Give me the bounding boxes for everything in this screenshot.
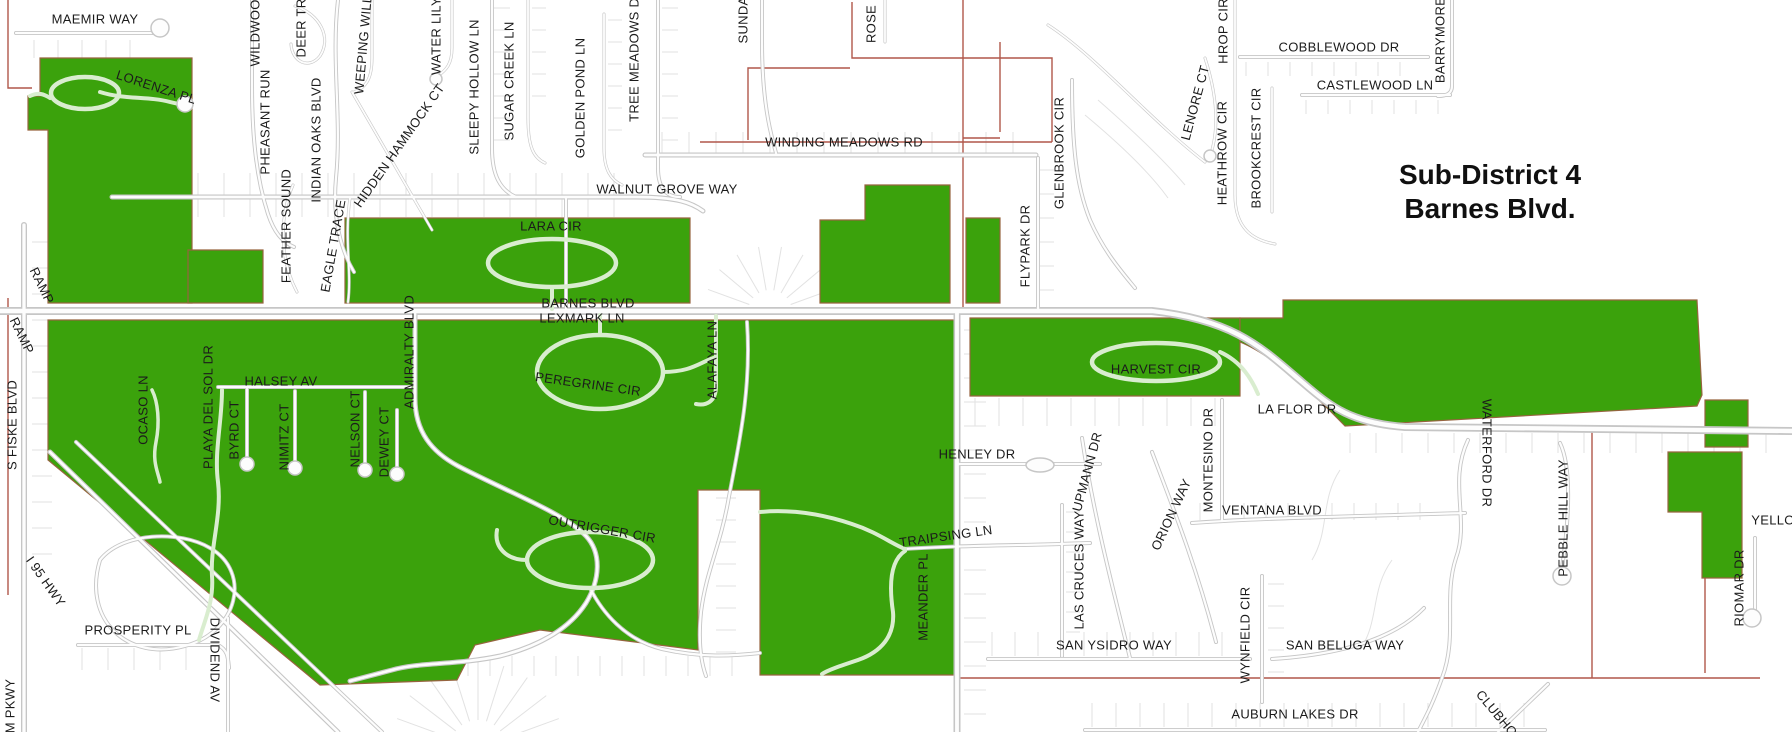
street-label-pheasant-run: PHEASANT RUN xyxy=(257,69,272,174)
street-label-hidden-hammock-ct: HIDDEN HAMMOCK CT xyxy=(351,81,448,210)
street-label-feather-sound: FEATHER SOUND xyxy=(278,169,293,283)
street-label-hrop-cir: HROP CIR xyxy=(1215,0,1230,64)
street-label-prosperity-pl: PROSPERITY PL xyxy=(85,622,192,637)
street-label-henley-dr: HENLEY DR xyxy=(939,446,1016,461)
street-label-indian-oaks-blvd: INDIAN OAKS BLVD xyxy=(308,77,323,202)
green-area-harvest-band xyxy=(970,318,1240,396)
street-label-harvest-cir: HARVEST CIR xyxy=(1111,361,1201,376)
street-label-m-pkwy: M PKWY xyxy=(2,679,17,732)
street-label-sunda: SUNDA xyxy=(735,0,750,44)
street-label-castlewood-ln: CASTLEWOOD LN xyxy=(1317,77,1434,92)
street-label-halsey-av: HALSEY AV xyxy=(244,373,317,388)
street-label-admiralty-blvd: ADMIRALTY BLVD xyxy=(401,295,416,409)
green-area-flypark-east-block xyxy=(966,218,1000,303)
street-label-deer-tr: DEER TR xyxy=(293,0,308,57)
street-label-riomar-dr: RIOMAR DR xyxy=(1731,549,1746,626)
street-label-las-cruces-way: LAS CRUCES WAY xyxy=(1071,510,1086,629)
street-label-upmann-dr: UPMANN DR xyxy=(1069,430,1105,513)
street-label-pebble-hill-way: PEBBLE HILL WAY xyxy=(1555,459,1570,576)
street-label-dividend-av: DIVIDEND AV xyxy=(208,618,223,703)
street-label-rose: ROSE xyxy=(863,5,878,43)
street-label-meander-pl: MEANDER PL xyxy=(915,553,930,641)
map-root: MAEMIR WAYLORENZA PLWILDWOODDEER TRPHEAS… xyxy=(0,0,1792,732)
street-label-playa-del-sol-dr: PLAYA DEL SOL DR xyxy=(200,345,215,469)
street-label-lexmark-ln: LEXMARK LN xyxy=(539,310,624,325)
street-label-nelson-ct: NELSON CT xyxy=(347,390,362,467)
map-title-line2: Barnes Blvd. xyxy=(1385,192,1595,226)
map-title: Sub-District 4 Barnes Blvd. xyxy=(1385,158,1595,226)
street-label-waterford-dr: WATERFORD DR xyxy=(1480,399,1495,507)
street-label-heathrow-cir: HEATHROW CIR xyxy=(1214,101,1229,205)
street-label-ramp: RAMP xyxy=(7,315,37,356)
green-area-riomar-square xyxy=(1705,400,1748,447)
green-area-feather-sound-block xyxy=(188,250,263,303)
street-label-ventana-blvd: VENTANA BLVD xyxy=(1222,502,1322,517)
street-label-s-fiske-blvd: S FISKE BLVD xyxy=(4,380,19,470)
street-label-water-lily: WATER LILY xyxy=(428,0,443,75)
street-label-nimitz-ct: NIMITZ CT xyxy=(276,404,291,471)
street-label-wildwood: WILDWOOD xyxy=(247,0,262,66)
street-label-auburn-lakes-dr: AUBURN LAKES DR xyxy=(1231,706,1358,721)
street-label-tree-meadows-dr: TREE MEADOWS DR xyxy=(626,0,641,122)
street-label-byrd-ct: BYRD CT xyxy=(226,400,241,459)
street-label-montesino-dr: MONTESINO DR xyxy=(1200,408,1215,513)
street-label-maemir-way: MAEMIR WAY xyxy=(52,11,139,26)
street-label-barnes-blvd: BARNES BLVD xyxy=(541,295,634,310)
street-label-lara-cir: LARA CIR xyxy=(520,218,582,233)
street-label-sleepy-hollow-ln: SLEEPY HOLLOW LN xyxy=(466,19,481,154)
street-label-winding-meadows-rd: WINDING MEADOWS RD xyxy=(765,134,923,149)
street-label-yello: YELLO xyxy=(1751,512,1792,527)
street-label-clubho: CLUBHO xyxy=(1473,687,1520,732)
green-area-flypark-west-block xyxy=(820,185,950,303)
street-label-golden-pond-ln: GOLDEN POND LN xyxy=(572,38,587,159)
map-canvas: MAEMIR WAYLORENZA PLWILDWOODDEER TRPHEAS… xyxy=(0,0,1792,732)
green-parcels-layer xyxy=(28,58,1748,685)
street-label-cobblewood-dr: COBBLEWOOD DR xyxy=(1279,39,1400,54)
street-label-la-flor-dr: LA FLOR DR xyxy=(1258,401,1337,416)
street-label-brookcrest-cir: BROOKCREST CIR xyxy=(1248,88,1263,209)
street-label-alafaya-ln: ALAFAYA LN xyxy=(704,321,719,399)
street-label-lenore-ct: LENORE CT xyxy=(1178,64,1212,142)
street-label-san-ysidro-way: SAN YSIDRO WAY xyxy=(1056,637,1172,652)
street-label-barrymore: BARRYMORE xyxy=(1432,0,1447,83)
street-label-dewey-ct: DEWEY CT xyxy=(376,407,391,478)
street-label-flypark-dr: FLYPARK DR xyxy=(1017,205,1032,288)
green-area-lara-cir-band xyxy=(345,218,690,303)
street-label-sugar-creek-ln: SUGAR CREEK LN xyxy=(501,21,516,140)
street-label-glenbrook-cir: GLENBROOK CIR xyxy=(1051,97,1066,209)
map-title-line1: Sub-District 4 xyxy=(1385,158,1595,192)
street-label-ocaso-ln: OCASO LN xyxy=(135,375,150,445)
street-label-wynfield-cir: WYNFIELD CIR xyxy=(1237,587,1252,684)
street-label-san-beluga-way: SAN BELUGA WAY xyxy=(1286,637,1404,652)
street-label-walnut-grove-way: WALNUT GROVE WAY xyxy=(596,181,737,196)
street-label-i-95-hwy: I 95 HWY xyxy=(23,553,69,609)
